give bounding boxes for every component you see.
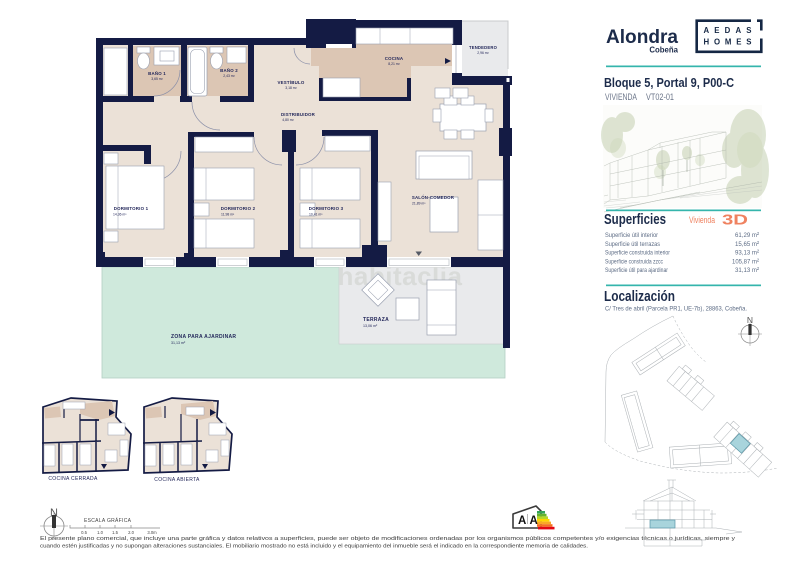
- svg-text:61,29 m²: 61,29 m²: [735, 232, 760, 239]
- svg-text:C/ Tres de abril (Parcela PR1,: C/ Tres de abril (Parcela PR1, UE-7b), 2…: [605, 306, 747, 313]
- svg-text:105,87 m²: 105,87 m²: [732, 258, 760, 265]
- svg-text:14,36 m²: 14,36 m²: [113, 213, 127, 217]
- svg-text:10,41 m²: 10,41 m²: [309, 213, 323, 217]
- svg-text:BAÑO 2: BAÑO 2: [220, 68, 238, 73]
- svg-text:15,65 m²: 15,65 m²: [735, 241, 760, 248]
- svg-text:Superficie construida interior: Superficie construida interior: [605, 250, 671, 257]
- svg-text:COCINA CERRADA: COCINA CERRADA: [48, 476, 98, 482]
- svg-text:COCINA ABIERTA: COCINA ABIERTA: [154, 477, 200, 483]
- svg-text:1.5: 1.5: [112, 530, 118, 535]
- svg-text:El presente plano comercial, q: El presente plano comercial, que incluye…: [40, 536, 736, 542]
- svg-text:11,98 m²: 11,98 m²: [221, 213, 235, 217]
- svg-text:2,43 m²: 2,43 m²: [223, 74, 235, 78]
- svg-text:DORMITORIO 3: DORMITORIO 3: [309, 206, 344, 211]
- svg-text:DORMITORIO 2: DORMITORIO 2: [221, 206, 256, 211]
- svg-text:ZONA PARA AJARDINAR: ZONA PARA AJARDINAR: [171, 334, 236, 340]
- svg-text:13,06 m²: 13,06 m²: [363, 324, 378, 328]
- svg-text:A: A: [518, 515, 526, 527]
- svg-text:31,13 m²: 31,13 m²: [735, 267, 760, 274]
- svg-text:TERRAZA: TERRAZA: [363, 317, 389, 323]
- svg-text:Localización: Localización: [604, 289, 675, 305]
- svg-text:Cobeña: Cobeña: [649, 46, 678, 55]
- svg-text:31,13 m²: 31,13 m²: [171, 341, 186, 345]
- svg-text:COCINA: COCINA: [385, 56, 404, 61]
- svg-text:Superficie útil terrazas: Superficie útil terrazas: [605, 241, 660, 248]
- svg-text:Superficie construida zzcc: Superficie construida zzcc: [605, 258, 663, 265]
- svg-text:BAÑO 1: BAÑO 1: [148, 71, 166, 76]
- svg-text:3D: 3D: [722, 212, 748, 229]
- svg-text:VT02-01: VT02-01: [646, 92, 674, 102]
- svg-text:Superficie útil para ajardinar: Superficie útil para ajardinar: [605, 267, 669, 274]
- svg-text:Vivienda: Vivienda: [689, 215, 716, 226]
- svg-text:21,89 m²: 21,89 m²: [412, 202, 426, 206]
- svg-text:8,21 m²: 8,21 m²: [388, 62, 400, 66]
- svg-text:DORMITORIO 1: DORMITORIO 1: [114, 206, 149, 211]
- svg-text:cuando estén justificadas y no: cuando estén justificadas y no supongan …: [40, 544, 588, 550]
- svg-text:ESCALA GRÁFICA: ESCALA GRÁFICA: [84, 517, 132, 524]
- svg-text:Superficies: Superficies: [604, 212, 666, 228]
- svg-text:4,80 m²: 4,80 m²: [282, 118, 294, 122]
- svg-text:SALÓN-COMEDOR: SALÓN-COMEDOR: [412, 195, 455, 200]
- svg-text:2.0: 2.0: [128, 530, 134, 535]
- svg-text:VIVIENDA: VIVIENDA: [605, 92, 637, 102]
- svg-text:3,18 m²: 3,18 m²: [285, 86, 297, 90]
- svg-text:A: A: [530, 515, 538, 527]
- svg-text:93,13 m²: 93,13 m²: [735, 250, 760, 257]
- svg-text:3,65 m²: 3,65 m²: [151, 77, 163, 81]
- svg-text:Superficie útil interior: Superficie útil interior: [605, 232, 659, 239]
- svg-text:DISTRIBUIDOR: DISTRIBUIDOR: [281, 112, 316, 117]
- svg-text:VESTÍBULO: VESTÍBULO: [278, 80, 305, 85]
- svg-text:3.0m: 3.0m: [147, 530, 157, 535]
- svg-text:1.0: 1.0: [97, 530, 103, 535]
- svg-text:2,96 m²: 2,96 m²: [477, 51, 489, 55]
- svg-text:Bloque 5, Portal 9, P00-C: Bloque 5, Portal 9, P00-C: [604, 75, 734, 90]
- svg-text:0.5: 0.5: [81, 530, 87, 535]
- svg-text:TENDEDERO: TENDEDERO: [469, 45, 498, 50]
